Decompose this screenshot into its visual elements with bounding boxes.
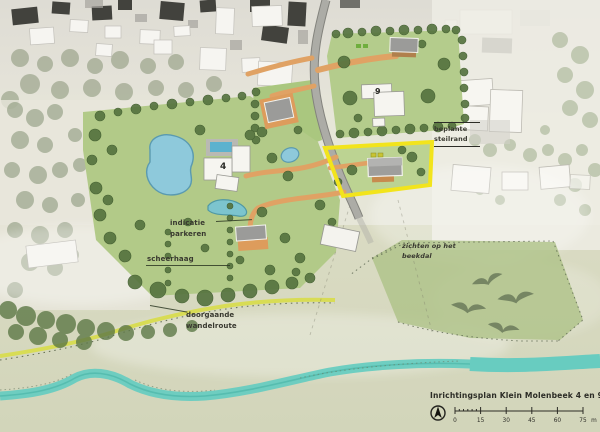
- hedge-leader-line: [146, 265, 230, 266]
- label-valley-views: zichten op het beekdal: [402, 241, 458, 261]
- north-arrow-icon: [429, 404, 447, 422]
- title-block: Inrichtingsplan Klein Molenbeek 4 en 9 0…: [430, 391, 596, 427]
- site-plan: indicatie parkeren scheerhaag doorgaande…: [0, 0, 600, 432]
- scale-tick-15: 15: [477, 418, 485, 424]
- scale-tick-45: 45: [528, 418, 536, 424]
- house-number-9: 9: [375, 87, 381, 96]
- label-parking: indicatie parkeren: [170, 218, 216, 240]
- scale-tick-75: 75: [579, 418, 587, 424]
- plan-title: Inrichtingsplan Klein Molenbeek 4 en 9: [430, 391, 596, 400]
- scale-unit: m: [591, 418, 597, 424]
- label-hedge: scheerhaag: [147, 254, 194, 265]
- scale-tick-60: 60: [554, 418, 562, 424]
- site-plan-artwork: [0, 0, 600, 432]
- scale-tick-0: 0: [453, 418, 457, 424]
- scale-tick-30: 30: [503, 418, 511, 424]
- label-walking-route: doorgaande wandelroute: [186, 310, 242, 332]
- label-planted-slope: beplante steilrand: [434, 122, 480, 147]
- house-number-4: 4: [220, 162, 226, 172]
- scale-bar: 0 15 30 45 60 75 m: [448, 403, 598, 425]
